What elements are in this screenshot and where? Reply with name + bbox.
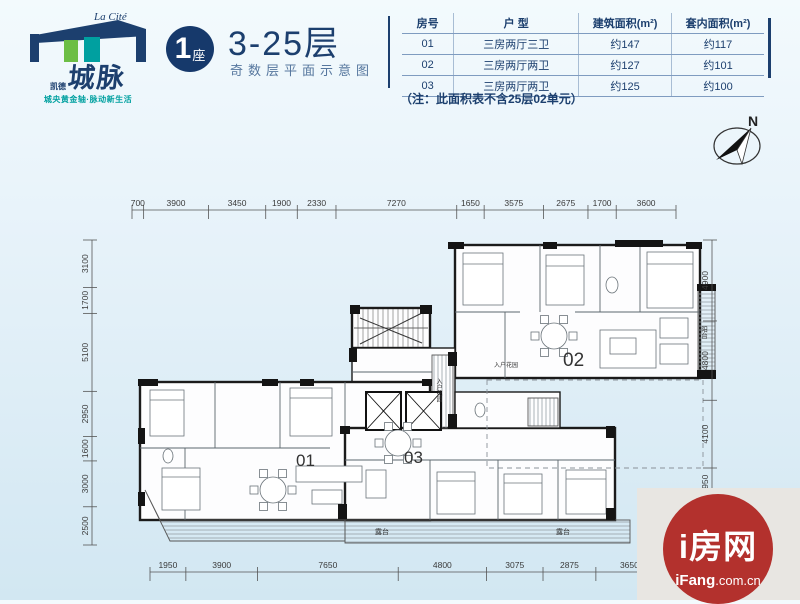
table-row: 02 三房两厅两卫 约127 约101 [402, 55, 764, 76]
svg-text:2675: 2675 [556, 198, 575, 208]
entry-garden-label-2: 入户花园 [494, 361, 518, 369]
svg-text:1900: 1900 [272, 198, 291, 208]
col-interior-area: 套内面积(m²) [672, 13, 764, 34]
terrace-label-2: 露台 [556, 527, 570, 536]
svg-text:7270: 7270 [387, 198, 406, 208]
cell-built: 约147 [579, 34, 672, 55]
brand-en-label: La Cité [93, 11, 128, 23]
brand-cn-small: 凯德 [50, 83, 66, 91]
cell-built: 约127 [579, 55, 672, 76]
svg-text:3600: 3600 [637, 198, 656, 208]
svg-text:3450: 3450 [228, 198, 247, 208]
brand-logo: La Cité 凯德 城脉 城央黄金轴·脉动新生活 [20, 6, 156, 110]
col-room-no: 房号 [402, 13, 454, 34]
svg-text:2500: 2500 [80, 516, 90, 535]
page-title: 3-25层 [228, 16, 340, 65]
svg-text:1650: 1650 [461, 198, 480, 208]
svg-text:2330: 2330 [307, 198, 326, 208]
block-suffix: 座 [192, 45, 205, 64]
brand-cn-big: 城脉 [67, 65, 128, 91]
cell-inner: 约100 [672, 76, 764, 97]
terrace-label-1: 露台 [375, 527, 389, 536]
entry-garden-label-1: 入户花园 [435, 378, 442, 403]
svg-text:1600: 1600 [80, 439, 90, 458]
cell-type: 三房两厅三卫 [454, 34, 579, 55]
svg-text:4800: 4800 [700, 351, 710, 370]
building-logo-icon: La Cité [20, 6, 156, 64]
cell-type: 三房两厅两卫 [454, 55, 579, 76]
svg-text:3900: 3900 [212, 560, 231, 570]
cell-built: 约125 [579, 76, 672, 97]
ifang-logo: i房网 iFang.com.cn [663, 494, 773, 604]
cell-room: 02 [402, 55, 454, 76]
header-divider [388, 16, 390, 88]
svg-text:3075: 3075 [505, 560, 524, 570]
svg-text:4900: 4900 [700, 271, 710, 290]
unit-02-label: 02 [563, 350, 584, 371]
svg-text:1700: 1700 [80, 291, 90, 310]
cell-room: 01 [402, 34, 454, 55]
cell-inner: 约117 [672, 34, 764, 55]
unit-03-label: 03 [404, 448, 423, 467]
svg-text:3000: 3000 [80, 474, 90, 493]
col-unit-type: 户 型 [454, 13, 579, 34]
cell-inner: 约101 [672, 55, 764, 76]
area-table-note: （注：此面积表不含25层02单元） [400, 90, 583, 107]
svg-text:3575: 3575 [504, 198, 523, 208]
compass-icon: N [714, 113, 760, 164]
svg-text:700: 700 [131, 198, 145, 208]
svg-text:2950: 2950 [80, 404, 90, 423]
unit-01-label: 01 [296, 451, 315, 470]
col-built-area: 建筑面积(m²) [579, 13, 672, 34]
brand-tagline: 城央黄金轴·脉动新生活 [20, 94, 156, 105]
svg-text:4100: 4100 [700, 424, 710, 443]
header-divider-right [768, 18, 771, 78]
ifang-logo-text: i房网 [663, 520, 773, 568]
compass-n-label: N [748, 113, 758, 129]
table-header-row: 房号 户 型 建筑面积(m²) 套内面积(m²) [402, 13, 764, 34]
block-badge: 1 座 [166, 26, 214, 72]
area-table: 房号 户 型 建筑面积(m²) 套内面积(m²) 01 三房两厅三卫 约147 … [402, 13, 764, 97]
svg-text:3900: 3900 [167, 198, 186, 208]
svg-text:7650: 7650 [318, 560, 337, 570]
svg-text:1950: 1950 [158, 560, 177, 570]
svg-text:2875: 2875 [560, 560, 579, 570]
ifang-watermark: i房网 iFang.com.cn [637, 488, 800, 600]
svg-text:4800: 4800 [433, 560, 452, 570]
block-number: 1 [175, 34, 192, 64]
svg-text:1700: 1700 [593, 198, 612, 208]
ifang-domain: iFang.com.cn [663, 572, 773, 589]
table-row: 01 三房两厅三卫 约147 约117 [402, 34, 764, 55]
svg-text:5100: 5100 [80, 343, 90, 362]
svg-text:3100: 3100 [80, 254, 90, 273]
page-subtitle: 奇数层平面示意图 [230, 60, 374, 79]
